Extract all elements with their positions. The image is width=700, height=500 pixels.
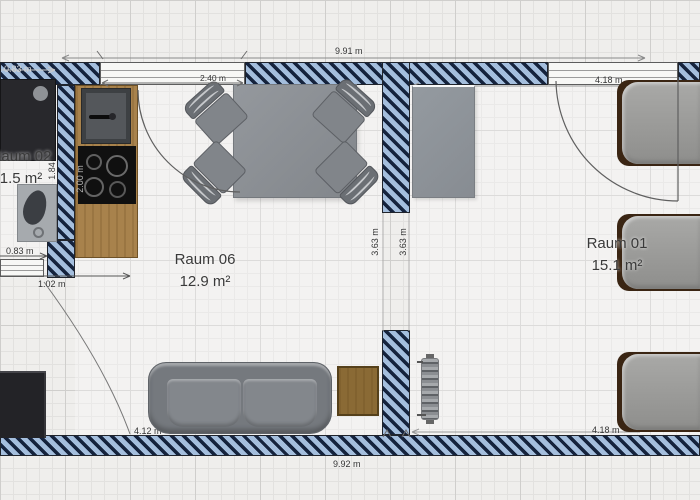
- dim-bath-top: 0.83 m: [4, 64, 32, 74]
- floor-plan-canvas: 4.18 m 4.18 m 4.12 m: [0, 0, 700, 500]
- door-swing-arc: [556, 81, 678, 201]
- dim-kitchen-length: 2.00 m: [75, 157, 85, 201]
- room-name: Raum 01: [562, 233, 672, 255]
- dim-passage-left: 3.63 m: [370, 220, 380, 264]
- room-label-raum06: Raum 06 12.9 m²: [150, 249, 260, 293]
- door-swing-arc: [138, 90, 240, 192]
- room-area-value: 1.5 m²: [0, 168, 66, 190]
- dim-bath-mid: 0.83 m: [6, 246, 34, 256]
- dim-bottom-width: 9.92 m: [333, 459, 361, 469]
- room-name: Raum 02: [0, 146, 66, 168]
- room-area-value: 15.1 m²: [562, 255, 672, 277]
- room-name: Raum 06: [150, 249, 260, 271]
- door-swing-arc: [44, 282, 130, 434]
- dim-window-width: 2.40 m: [200, 73, 226, 83]
- room-label-raum01: Raum 01 15.1 m²: [562, 233, 672, 277]
- dim-passage-right: 3.63 m: [398, 220, 408, 264]
- room-area-value: 12.9 m²: [150, 271, 260, 293]
- dim-top-width: 9.91 m: [335, 46, 363, 56]
- dim-bath-door: 1.02 m: [38, 279, 66, 289]
- room-label-raum02: Raum 02 1.5 m²: [0, 146, 66, 190]
